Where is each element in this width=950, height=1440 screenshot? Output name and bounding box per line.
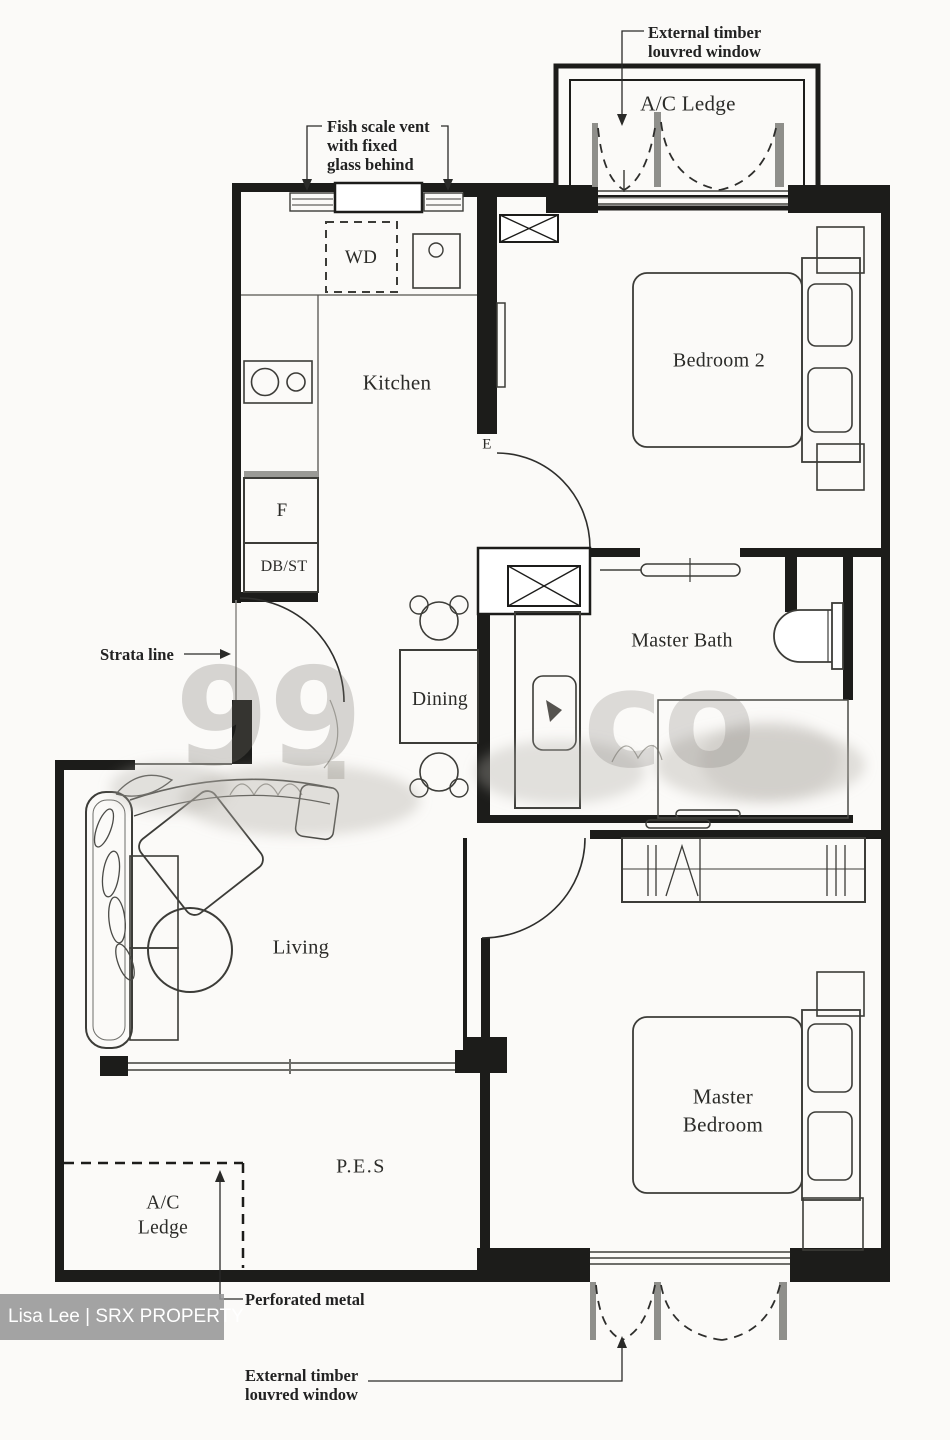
- sofa-cushion-2: [130, 948, 178, 1040]
- louvred-window-bottom: [590, 1282, 787, 1340]
- annotation-strata-line: Strata line: [100, 645, 174, 664]
- kitchen-vent-1: [290, 193, 335, 211]
- label-master-bedroom: Master Bedroom: [683, 1083, 763, 1138]
- annotation-fish-scale-vent: Fish scale vent with fixed glass behind: [327, 117, 430, 174]
- agent-watermark: Lisa Lee | SRX PROPERTY: [0, 1294, 224, 1340]
- bed2-pillow-2: [808, 368, 852, 432]
- annotation-louvred-window-top: External timber louvred window: [648, 23, 761, 61]
- kitchen-fittings: [241, 183, 477, 592]
- brand-watermark-dot: .: [318, 700, 354, 795]
- brand-watermark-co: co: [583, 652, 756, 787]
- label-washer-dryer: WD: [345, 247, 377, 269]
- label-pes: P.E.S: [336, 1156, 386, 1179]
- label-bedroom2: Bedroom 2: [673, 350, 765, 373]
- label-entrance: E: [482, 437, 491, 454]
- bedroom2-wall-niche: [497, 303, 505, 387]
- annotation-perforated-metal: Perforated metal: [245, 1290, 365, 1309]
- label-master-bath: Master Bath: [631, 630, 733, 653]
- kitchen-window-box: [335, 183, 422, 212]
- label-fridge: F: [277, 500, 288, 522]
- mbed-pillow-1: [808, 1024, 852, 1092]
- entrance-door-arc: [497, 453, 590, 548]
- mbed-pillow-2: [808, 1112, 852, 1180]
- kitchen-vent-2: [424, 193, 463, 211]
- coffee-table: [148, 908, 232, 992]
- label-dining: Dining: [412, 689, 468, 711]
- master-bedroom-door-arc: [482, 838, 585, 938]
- annotation-louvred-window-bottom: External timber louvred window: [245, 1366, 358, 1404]
- dining-chair-top: [420, 602, 458, 640]
- bed2-pillow-1: [808, 284, 852, 346]
- hob-burner-large: [252, 369, 279, 396]
- floorplan-page: 99 . co A/C Ledge Kitchen WD F DB/ST E B…: [0, 0, 950, 1440]
- hanging-clothes-icon: [666, 846, 698, 896]
- label-ac-ledge-bottom: A/C Ledge: [138, 1191, 188, 1242]
- label-db-store: DB/ST: [261, 558, 308, 576]
- hob-burner-small: [287, 373, 305, 391]
- label-ac-ledge-top: A/C Ledge: [640, 92, 735, 117]
- label-living: Living: [273, 937, 329, 960]
- bed2-side-table-1: [817, 227, 864, 273]
- mbed-side-table-2: [803, 1198, 863, 1250]
- master-bedroom-furniture: [622, 838, 865, 1250]
- basin-tap: [546, 700, 562, 722]
- louvred-window-top: [592, 112, 784, 192]
- sink-drain: [429, 243, 443, 257]
- kitchen-sink: [413, 234, 460, 288]
- bed2-side-table-2: [817, 444, 864, 490]
- label-kitchen: Kitchen: [363, 371, 432, 396]
- toilet-tank: [832, 603, 843, 669]
- wardrobe: [622, 838, 865, 902]
- dining-chair-bottom: [420, 753, 458, 791]
